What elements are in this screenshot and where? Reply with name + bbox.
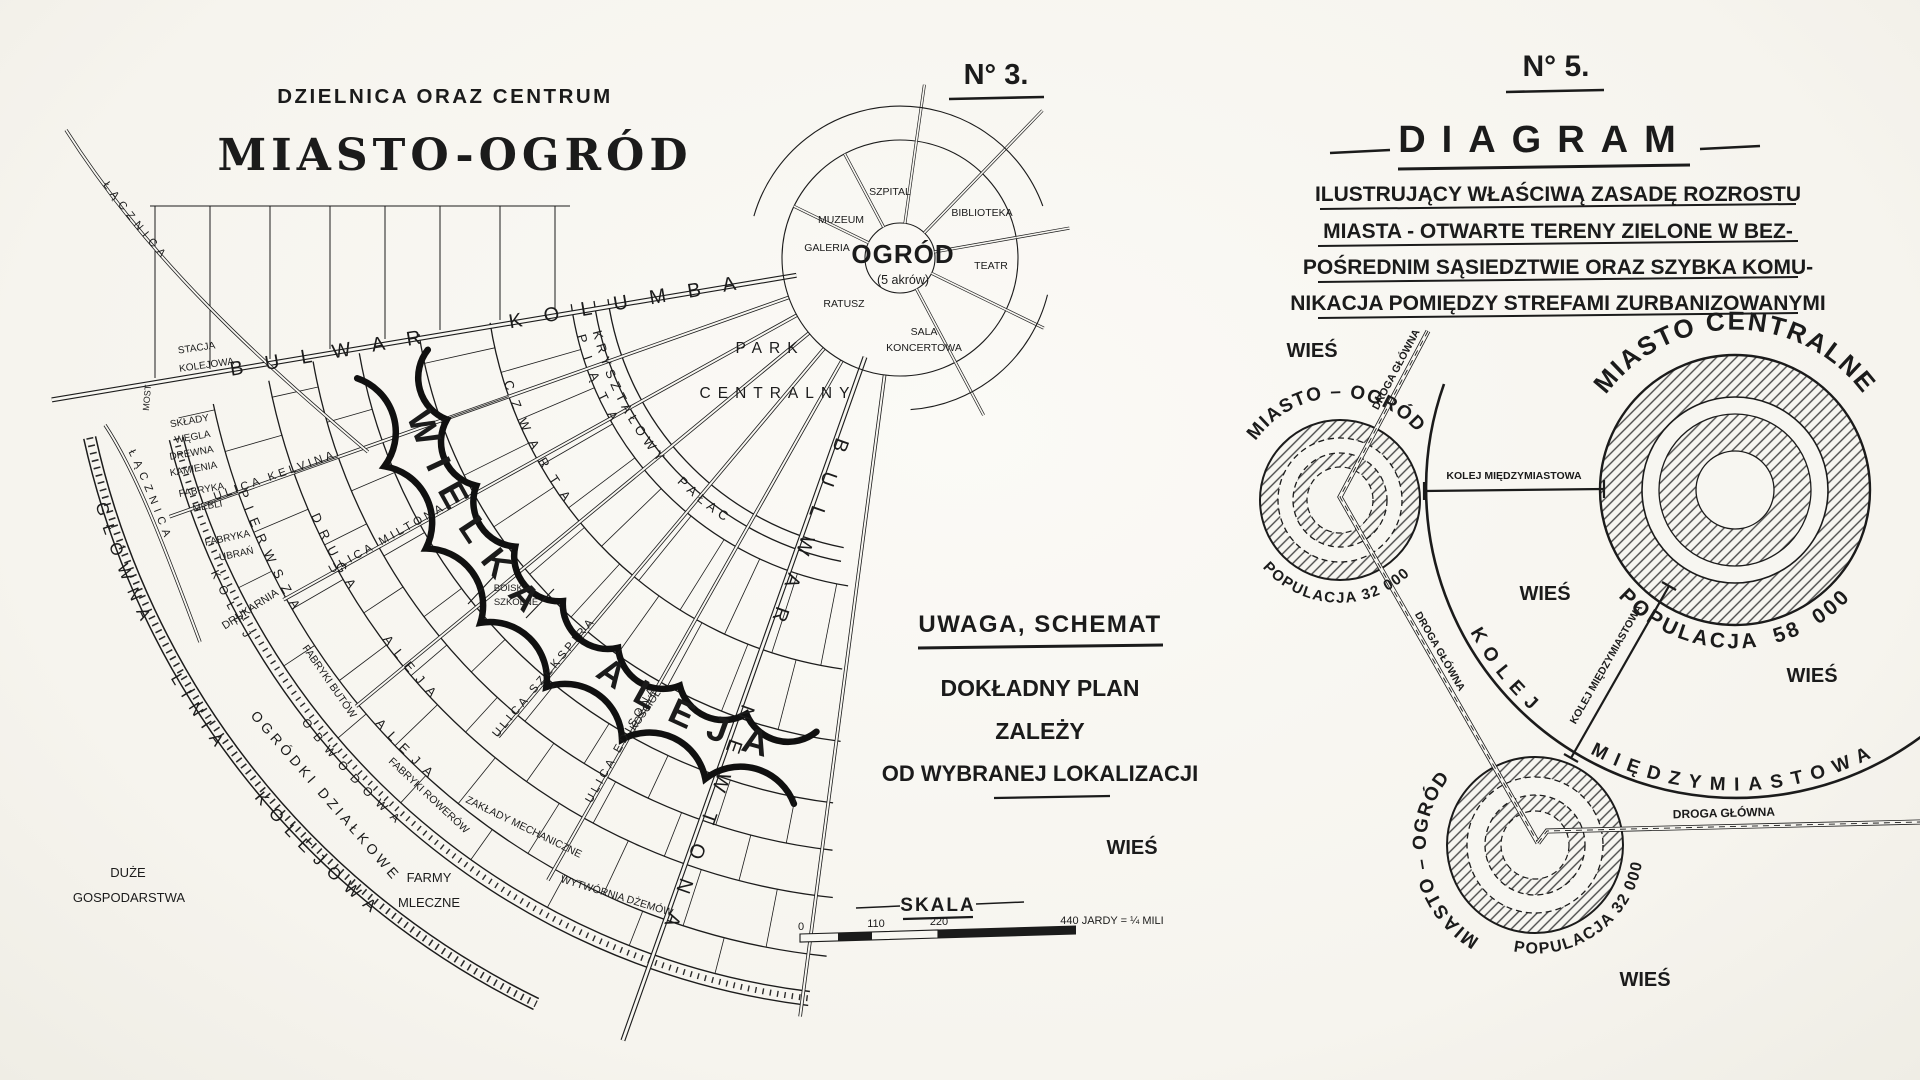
title-dash-left (1330, 150, 1390, 153)
plan-line (494, 487, 554, 527)
plan-line (471, 639, 505, 672)
diagram-subtitle-3: POŚREDNIM SĄSIEDZTWIE ORAZ SZYBKA KOMU- (1303, 255, 1813, 279)
plan-line (239, 571, 272, 588)
scale-tick-110: 110 (867, 918, 885, 930)
plan-line (821, 584, 837, 666)
countryside-label: WIEŚ (1519, 581, 1570, 605)
diagram-subtitle-2: MIASTA - OTWARTE TERENY ZIELONE W BEZ- (1323, 220, 1793, 243)
plan-line (424, 588, 462, 616)
countryside-label: WIEŚ (1106, 835, 1157, 859)
plan-line (527, 743, 554, 781)
street-label-kolej-obwodowa: KOLEJ OBWODOWA (208, 568, 409, 831)
plan-title: MIASTO-OGRÓD (217, 128, 692, 181)
plan-line (501, 350, 581, 373)
note-underline-1 (918, 645, 1163, 648)
plan-line (955, 362, 983, 415)
hub-label-ratusz: RATUSZ (823, 298, 865, 310)
site-label-wegla: WĘGLA (174, 429, 212, 446)
plan-line (932, 273, 1007, 309)
plan-line (351, 473, 394, 491)
note-underline-2 (994, 796, 1110, 798)
diagram-title-underline (1398, 165, 1690, 169)
scale-dash-left (856, 906, 900, 908)
figure-canvas: N° 3. DZIELNICA ORAZ CENTRUM MIASTO-OGRÓ… (0, 0, 1920, 1080)
scale-note: 440 JARDY = ¼ MILI (1060, 915, 1163, 927)
intercity-railway-straight-label: KOLEJ MIĘDZYMIASTOWA (1446, 470, 1582, 482)
site-label-szkolne: SZKOLNE (494, 597, 538, 608)
diagram-title: DIAGRAM (1398, 119, 1692, 161)
hub-label-koncertowa: KONCERTOWA (886, 342, 962, 354)
countryside-label: WIEŚ (1786, 663, 1837, 687)
plan-subtitle: DZIELNICA ORAZ CENTRUM (277, 85, 613, 108)
main-road-label-2: DROGA GŁÓWNA (1412, 609, 1468, 693)
street-label-lacznica-1: ŁĄCZNICA (100, 180, 171, 264)
plan-line (778, 660, 796, 730)
plan-line (425, 348, 495, 364)
countryside-label: WIEŚ (1619, 967, 1670, 991)
plan-line (639, 516, 691, 581)
street-label-pierwsza-aleja: PIERWSZA ALEJA (235, 487, 442, 785)
hub-label-galeria: GALERIA (804, 242, 850, 254)
main-road-label-3: DROGA GŁÓWNA (1673, 804, 1776, 822)
plan-line (725, 559, 760, 634)
scale-title: SKALA (900, 895, 975, 916)
site-label-wytwornia-dzemow: WYTWÓRNIA DŻEMÓW (559, 872, 674, 919)
plan-line (916, 85, 924, 141)
park-label-1: PARK (735, 340, 804, 357)
plan-line (471, 830, 492, 860)
hub-label-sala: SALA (911, 326, 938, 338)
scanned-book-page: N° 3. DZIELNICA ORAZ CENTRUM MIASTO-OGRÓ… (0, 0, 1920, 1080)
street-label-lacznica-2: ŁĄCZNICA (126, 448, 175, 544)
plan-line (571, 564, 620, 617)
plan-line (213, 404, 826, 956)
plan-line (530, 528, 585, 575)
plan-line (1006, 310, 1044, 328)
diagram-number: N° 5. (1522, 50, 1589, 83)
scale-tick-220: 220 (930, 916, 948, 928)
intercity-railway-line (1424, 489, 1604, 491)
city-core (1501, 811, 1569, 879)
scale-bar-segment (938, 926, 1076, 939)
site-label-boisko: BOISKO (494, 583, 530, 594)
scale-dash-right (976, 902, 1024, 904)
plan-line (680, 540, 724, 610)
site-label-most: MOST (141, 384, 153, 411)
note-line-3: ZALEŻY (995, 718, 1084, 744)
plan-line (466, 697, 498, 732)
railway-end-bar (1564, 754, 1578, 762)
intercity-railway-diagonal-label: KOLEJ MIĘDZYMIASTOWA (1568, 602, 1646, 726)
plan-line (313, 362, 832, 851)
title-dash-right (1700, 146, 1760, 149)
diagram-number-underline (1506, 90, 1604, 92)
plan-line (905, 141, 917, 223)
note-line-2: DOKŁADNY PLAN (941, 675, 1140, 701)
site-label-gospodarstwa: GOSPODARSTWA (73, 890, 186, 905)
scale-tick-0: 0 (798, 921, 804, 933)
site-label-mleczne: MLECZNE (398, 895, 460, 910)
site-label-farmy: FARMY (407, 870, 452, 885)
note-line-4: OD WYBRANEJ LOKALIZACJI (882, 761, 1199, 786)
plan-line (584, 724, 609, 764)
plan-line (327, 409, 372, 422)
plan-line (648, 756, 668, 799)
plan-line (664, 813, 681, 857)
countryside-label: WIEŚ (1286, 338, 1337, 362)
note-line-1: UWAGA, SCHEMAT (918, 611, 1161, 638)
plan-line (518, 388, 594, 421)
street-label-bulwar-kolumba: BULWAR KOLUMBA (228, 269, 759, 381)
hub-label-muzeum: MUZEUM (818, 214, 864, 226)
plan-line (629, 911, 643, 945)
city-core (1696, 451, 1774, 529)
hub-label-ogrod-area: (5 akrów) (877, 273, 929, 287)
hub-label-biblioteka: BIBLIOTEKA (951, 207, 1012, 219)
plan-line (924, 173, 982, 233)
central-city-rings (1600, 355, 1870, 625)
hub-label-teatr: TEATR (974, 260, 1008, 272)
plan-line (739, 835, 751, 881)
park-label-2: CENTRALNY (700, 385, 857, 402)
site-label-fabryka-ubran-2: UBRAŃ (218, 544, 255, 564)
scale-bar-segment (838, 932, 872, 941)
site-label-duze: DUŻE (110, 865, 146, 880)
plan-line (441, 397, 509, 421)
plan-line (668, 623, 702, 686)
plan-number-underline (949, 97, 1044, 99)
garden-city-2-rings (1447, 757, 1623, 933)
plan-line (766, 889, 777, 947)
site-label-fabryka-ubran-1: FABRYKA (204, 528, 252, 548)
growth-diagram-geometry (1260, 331, 1920, 933)
street-label-ulica-kelvina: ULICA KELVINA (212, 448, 338, 503)
plan-line (982, 111, 1042, 174)
plan-line (617, 596, 659, 655)
hub-label-ogrod: OGRÓD (851, 239, 954, 269)
plan-number: N° 3. (964, 59, 1029, 91)
site-label-fabryka-mebli-2: MEBLI (192, 499, 223, 515)
diagram-subtitle-1: ILUSTRUJĄCY WŁAŚCIWĄ ZASADĘ ROZROSTU (1315, 182, 1801, 206)
plan-line (715, 938, 724, 974)
site-label-sklady: SKŁADY (169, 413, 210, 431)
plan-line (225, 435, 282, 451)
plan-line (541, 424, 613, 466)
hub-label-szpital: SZPITAL (869, 186, 911, 198)
plan-line (1016, 228, 1069, 237)
